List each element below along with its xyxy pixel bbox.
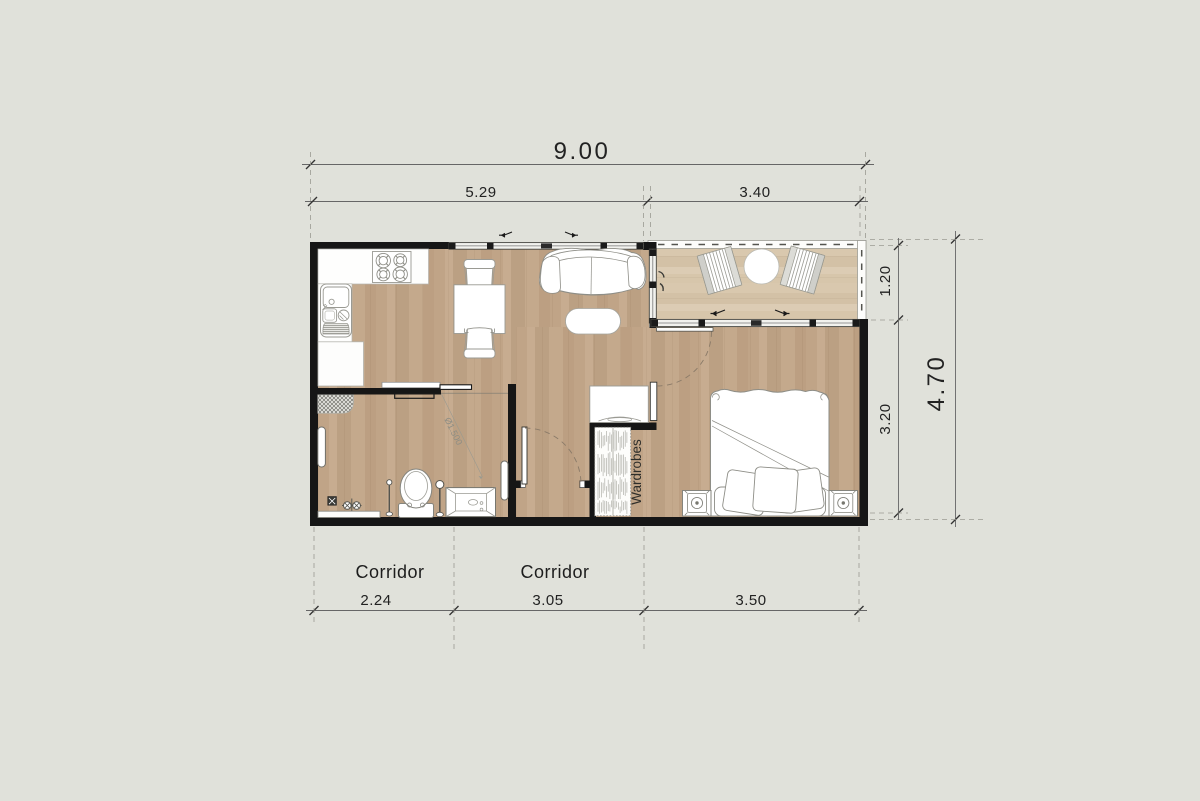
svg-text:Corridor: Corridor xyxy=(355,562,424,582)
svg-text:9.00: 9.00 xyxy=(554,138,611,165)
svg-text:Ø1.500: Ø1.500 xyxy=(442,416,464,447)
svg-text:Corridor: Corridor xyxy=(520,562,589,582)
svg-text:5.29: 5.29 xyxy=(465,184,496,201)
svg-text:Wardrobes: Wardrobes xyxy=(629,439,644,505)
svg-text:3.50: 3.50 xyxy=(735,592,766,609)
svg-text:4.70: 4.70 xyxy=(923,355,950,412)
svg-text:2.24: 2.24 xyxy=(360,592,391,609)
svg-text:3.40: 3.40 xyxy=(739,184,770,201)
svg-text:3.20: 3.20 xyxy=(877,403,894,434)
svg-text:3.05: 3.05 xyxy=(532,592,563,609)
svg-text:1.20: 1.20 xyxy=(877,265,894,296)
